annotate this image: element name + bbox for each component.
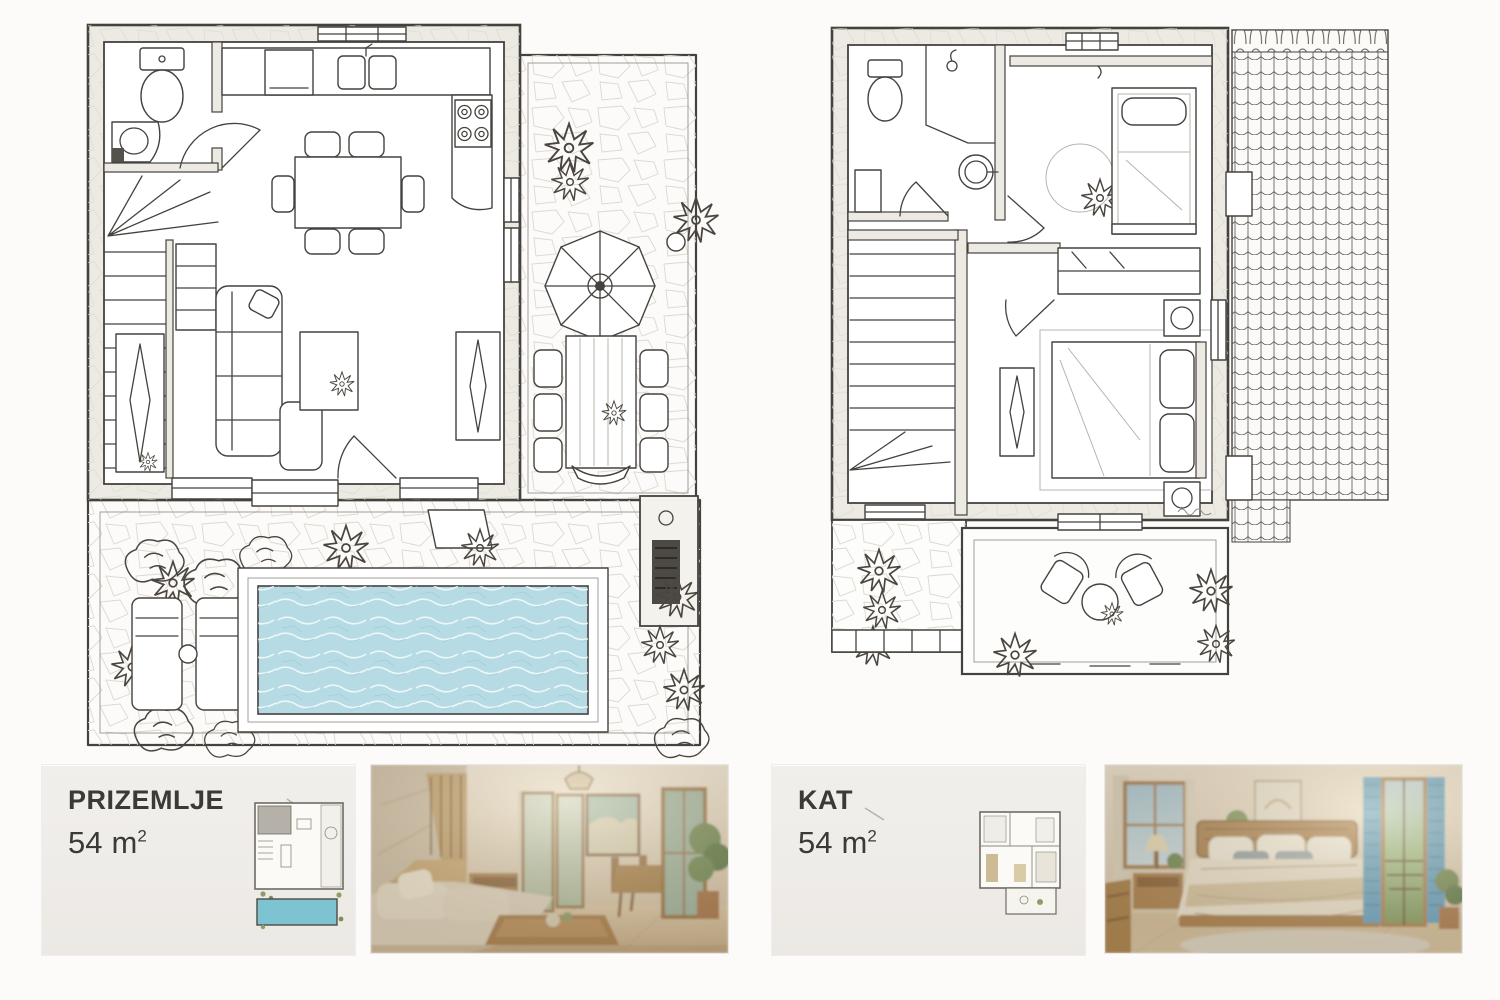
upper-garden-patch xyxy=(832,505,966,666)
living-room-photo xyxy=(371,765,728,953)
coffee-table-icon xyxy=(300,332,358,410)
outdoor-dining xyxy=(534,336,668,484)
balcony-door xyxy=(1058,514,1142,530)
window-box xyxy=(1226,172,1252,216)
top-window xyxy=(1066,33,1118,50)
side-window xyxy=(1211,300,1226,360)
floor-area: 54m2 xyxy=(798,825,877,861)
area-unit: m xyxy=(841,825,867,860)
area-exponent: 2 xyxy=(867,827,876,846)
floor-area: 54m2 xyxy=(68,825,147,861)
double-bed-icon xyxy=(1052,342,1206,478)
stove-icon xyxy=(455,100,491,147)
ground-floor-label-card: PRIZEMLJE 54m2 xyxy=(42,765,355,955)
sideboard-left xyxy=(116,334,164,472)
area-value: 54 xyxy=(798,825,832,860)
wc-sink-icon xyxy=(112,122,160,162)
floor-plans-drawing xyxy=(0,0,1500,760)
barbecue-icon xyxy=(640,496,698,626)
kitchen-window xyxy=(318,27,406,41)
ground-floor-plan xyxy=(88,25,718,758)
nightstand-icon xyxy=(1164,300,1200,336)
balcony xyxy=(962,514,1235,676)
parasol-icon xyxy=(545,231,655,341)
floor-title: PRIZEMLJE xyxy=(68,785,224,816)
upper-floor-plan xyxy=(832,28,1388,676)
pool xyxy=(238,568,608,732)
cabinet-right xyxy=(456,332,500,440)
floor-plan-sheet: PRIZEMLJE 54m2 xyxy=(0,0,1500,1000)
area-exponent: 2 xyxy=(137,827,146,846)
single-bed-icon xyxy=(1112,88,1196,234)
area-value: 54 xyxy=(68,825,102,860)
bedroom-photo xyxy=(1105,765,1462,953)
floor-title: KAT xyxy=(798,785,853,816)
dresser-icon xyxy=(1000,368,1034,456)
pencil-mark xyxy=(862,803,888,825)
toilet-icon xyxy=(140,48,184,122)
toilet-icon xyxy=(868,60,902,121)
window-box xyxy=(1226,456,1252,500)
ground-floor-mini-plan xyxy=(253,801,347,931)
upper-floor-label-card: KAT 54m2 xyxy=(772,765,1085,955)
side-windows xyxy=(504,178,519,282)
area-unit: m xyxy=(111,825,137,860)
roof-tiles xyxy=(1232,30,1388,542)
upper-floor-mini-plan xyxy=(978,810,1064,918)
